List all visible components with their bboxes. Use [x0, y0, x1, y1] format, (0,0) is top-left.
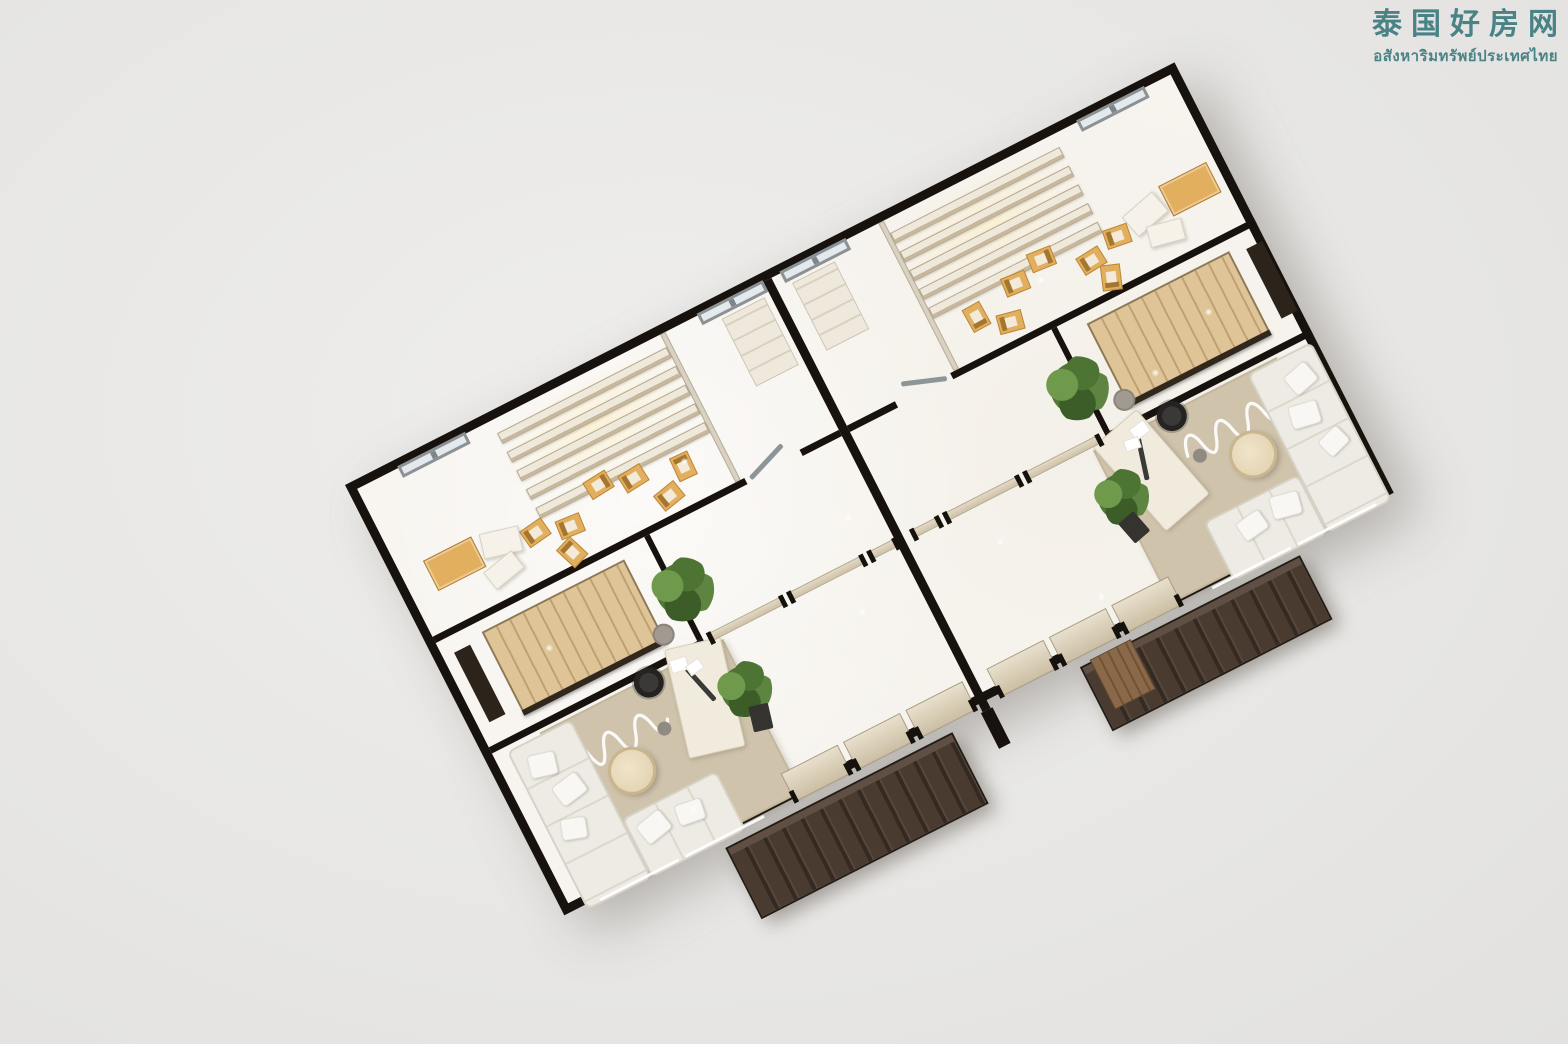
tan-chair-left-1 [519, 517, 552, 548]
tan-chair-right-7 [962, 301, 992, 333]
party-wall [763, 278, 990, 712]
facade-panel-left-3 [905, 681, 977, 739]
wall-a-left-2 [800, 430, 842, 456]
tan-chair-left-7 [669, 450, 698, 482]
party-wall-stub [981, 707, 1011, 749]
door-leaf-left [749, 443, 784, 480]
display-cabinet-left [423, 536, 487, 591]
tan-chair-right-5 [1100, 263, 1123, 291]
storage-closet-right [792, 261, 869, 351]
watermark: 泰国好房网 อสังหาริมทรัพย์ประเทศไทย [1372, 8, 1558, 68]
partition-right-1 [910, 516, 942, 538]
canvas: { "watermark": { "title_zh": "泰国好房网", "s… [0, 0, 1568, 1044]
partition-left-3 [867, 538, 899, 560]
floor-plan [345, 62, 1394, 915]
scene-background: 泰国好房网 อสังหาริมทรัพย์ประเทศไทย [0, 0, 1568, 1044]
floor-sparkle-10 [1096, 591, 1107, 602]
window-back-left-outer [397, 432, 471, 478]
partition-left-2 [787, 555, 866, 601]
tan-chair-right-6 [995, 309, 1025, 335]
door-leaf-right [901, 376, 947, 387]
watermark-subtitle: อสังหาริมทรัพย์ประเทศไทย [1372, 44, 1558, 68]
facade-panel-right-1 [986, 640, 1058, 698]
pillow-left-3 [559, 816, 588, 842]
wall-a-right-1 [847, 401, 898, 432]
partition-right-2 [943, 475, 1022, 521]
partition-right-3 [1023, 435, 1102, 481]
floor-sparkle-5 [843, 513, 854, 524]
display-plinth-left-1 [479, 525, 524, 559]
watermark-title: 泰国好房网 [1372, 8, 1567, 43]
window-back-right-outer [1076, 86, 1150, 132]
floor-sparkle-6 [1035, 274, 1046, 285]
floor-sparkle-8 [995, 536, 1006, 547]
partition-left-1 [707, 596, 786, 642]
tan-chair-left-6 [653, 480, 686, 512]
floor-sparkle-3 [857, 607, 868, 618]
